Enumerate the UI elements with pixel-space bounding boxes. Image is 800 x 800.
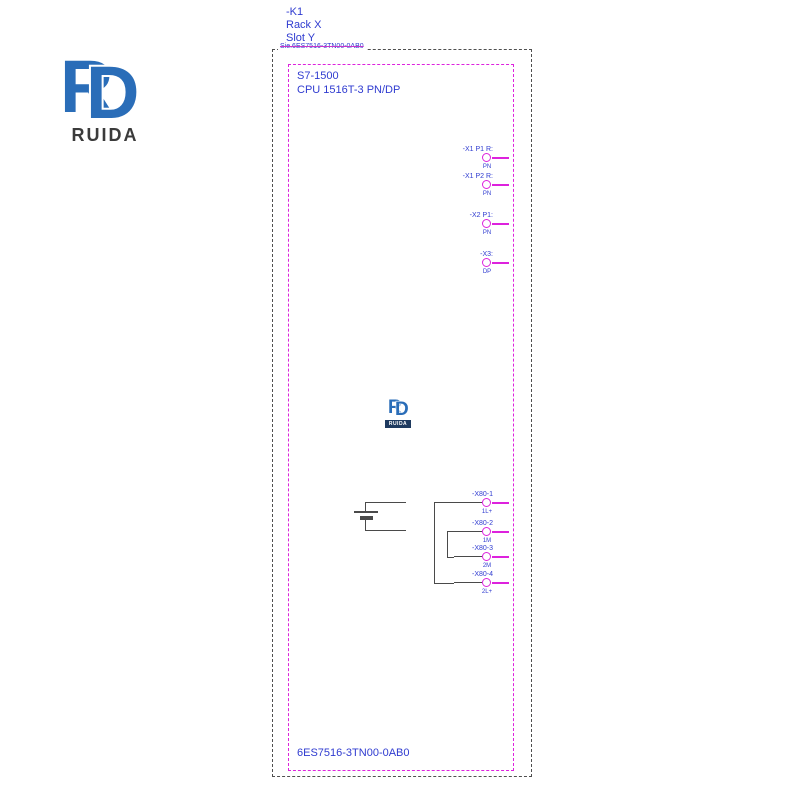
wire-segment (434, 583, 454, 584)
wire-segment (365, 530, 406, 531)
pin-function-label: 2L+ (475, 589, 499, 595)
device-tag: -K1 (286, 6, 303, 19)
connection-line (492, 531, 509, 533)
wire-segment (365, 502, 366, 512)
connection-point-icon (482, 527, 491, 536)
watermark-brand-name: RUIDA (385, 420, 411, 428)
port-function-label: PN (475, 230, 499, 236)
battery-long-plate (354, 511, 378, 513)
connection-point-icon (482, 552, 491, 561)
connection-point-icon (482, 258, 491, 267)
connection-line (492, 556, 509, 558)
battery-short-plate (360, 516, 373, 520)
pin-label: -X80-4 (472, 571, 493, 578)
wire-segment (434, 502, 435, 584)
port-label: -X1 P1 R: (463, 146, 493, 153)
port-function-label: PN (475, 191, 499, 197)
connection-line (492, 157, 509, 159)
wire-segment (454, 582, 482, 583)
port-function-label: PN (475, 164, 499, 170)
wire-segment (447, 557, 454, 558)
port-label: -X1 P2 R: (463, 173, 493, 180)
connection-line (492, 262, 509, 264)
wire-segment (434, 502, 454, 503)
module-series: S7-1500 (297, 70, 339, 83)
monogram-d: D (395, 399, 409, 417)
connection-line (492, 223, 509, 225)
schematic-page: R D RUIDA -K1 Rack X Slot Y Sie.6ES7516-… (0, 0, 800, 800)
connection-line (492, 502, 509, 504)
struck-part-number: Sie.6ES7516-3TN00-0AB0 (278, 43, 366, 50)
pin-label: -X80-1 (472, 491, 493, 498)
wire-segment (454, 556, 482, 557)
connection-line (492, 184, 509, 186)
connection-point-icon (482, 498, 491, 507)
pin-function-label: 1L+ (475, 509, 499, 515)
port-function-label: DP (475, 269, 499, 275)
wire-segment (447, 531, 454, 532)
connection-point-icon (482, 180, 491, 189)
rd-monogram-icon: R D (387, 396, 411, 417)
rd-monogram-icon: R D (60, 46, 150, 124)
connection-point-icon (482, 219, 491, 228)
pin-label: -X80-2 (472, 520, 493, 527)
rack-label: Rack X (286, 19, 321, 32)
connection-line (492, 582, 509, 584)
brand-name: RUIDA (60, 125, 150, 146)
wire-segment (365, 502, 406, 503)
pin-function-label: 2M (475, 563, 499, 569)
port-label: -X3: (480, 251, 493, 258)
connection-point-icon (482, 578, 491, 587)
watermark-logo: R D RUIDA (385, 396, 413, 428)
company-logo: R D RUIDA (60, 46, 150, 146)
module-order-number: 6ES7516-3TN00-0AB0 (297, 747, 410, 760)
monogram-d: D (86, 51, 139, 124)
connection-point-icon (482, 153, 491, 162)
wire-segment (447, 531, 448, 558)
wire-segment (454, 502, 482, 503)
wire-segment (454, 531, 482, 532)
pin-label: -X80-3 (472, 545, 493, 552)
port-label: -X2 P1: (470, 212, 493, 219)
pin-function-label: 1M (475, 538, 499, 544)
module-name: CPU 1516T-3 PN/DP (297, 84, 400, 97)
